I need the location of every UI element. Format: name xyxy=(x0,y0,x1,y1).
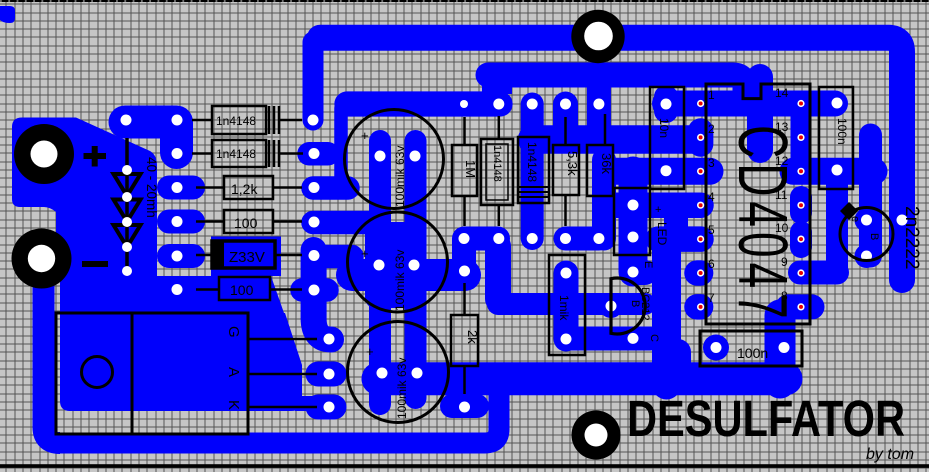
svg-text:A: A xyxy=(225,367,242,377)
svg-text:7: 7 xyxy=(708,291,715,305)
svg-text:2n2222: 2n2222 xyxy=(901,206,922,269)
svg-text:G: G xyxy=(225,326,242,338)
svg-text:LED: LED xyxy=(655,222,669,246)
svg-text:100n: 100n xyxy=(835,118,849,145)
svg-text:5: 5 xyxy=(708,223,715,237)
svg-text:100mik 63v: 100mik 63v xyxy=(393,146,407,207)
svg-text:+: + xyxy=(361,128,369,143)
svg-text:14: 14 xyxy=(775,86,789,100)
svg-text:11: 11 xyxy=(775,188,788,202)
svg-text:3: 3 xyxy=(708,156,715,170)
svg-text:K: K xyxy=(225,400,242,410)
svg-text:8: 8 xyxy=(781,289,788,303)
svg-text:CD4047: CD4047 xyxy=(724,125,803,324)
svg-text:B: B xyxy=(868,233,880,240)
svg-text:40 - 20mh: 40 - 20mh xyxy=(144,157,159,218)
svg-text:+: + xyxy=(366,344,374,359)
svg-text:1mik: 1mik xyxy=(557,295,571,321)
svg-text:100mik 63v: 100mik 63v xyxy=(393,250,407,311)
svg-text:E: E xyxy=(642,261,654,268)
svg-text:10: 10 xyxy=(775,221,789,235)
svg-text:1n4148: 1n4148 xyxy=(216,114,256,128)
svg-text:100n: 100n xyxy=(737,345,768,361)
svg-text:2k: 2k xyxy=(465,330,480,344)
svg-text:4: 4 xyxy=(708,190,715,204)
svg-text:e: e xyxy=(849,216,861,222)
svg-text:by tom: by tom xyxy=(866,446,914,463)
svg-text:1n4148: 1n4148 xyxy=(525,142,539,182)
svg-text:6: 6 xyxy=(708,257,715,271)
svg-text:1: 1 xyxy=(708,88,715,102)
svg-text:+: + xyxy=(361,246,369,261)
svg-text:10n: 10n xyxy=(657,118,671,138)
svg-text:5,3k: 5,3k xyxy=(565,151,580,176)
svg-text:12: 12 xyxy=(775,154,789,168)
svg-text:C: C xyxy=(648,334,660,342)
svg-text:36k: 36k xyxy=(599,153,614,174)
svg-text:+: + xyxy=(655,204,661,216)
svg-text:BC212: BC212 xyxy=(639,287,651,321)
svg-text:DESULFATOR: DESULFATOR xyxy=(627,390,905,447)
svg-text:100mik 63v: 100mik 63v xyxy=(395,358,409,419)
svg-text:1M: 1M xyxy=(463,160,478,178)
svg-text:1,2k: 1,2k xyxy=(231,181,258,197)
svg-text:9: 9 xyxy=(781,255,788,269)
svg-text:1n4148: 1n4148 xyxy=(216,147,256,161)
svg-text:1n4148: 1n4148 xyxy=(491,145,503,182)
svg-text:13: 13 xyxy=(775,120,789,134)
svg-text:100: 100 xyxy=(230,282,254,298)
svg-text:100: 100 xyxy=(234,215,258,231)
svg-text:2: 2 xyxy=(708,122,715,136)
svg-text:Z33V: Z33V xyxy=(229,249,265,266)
